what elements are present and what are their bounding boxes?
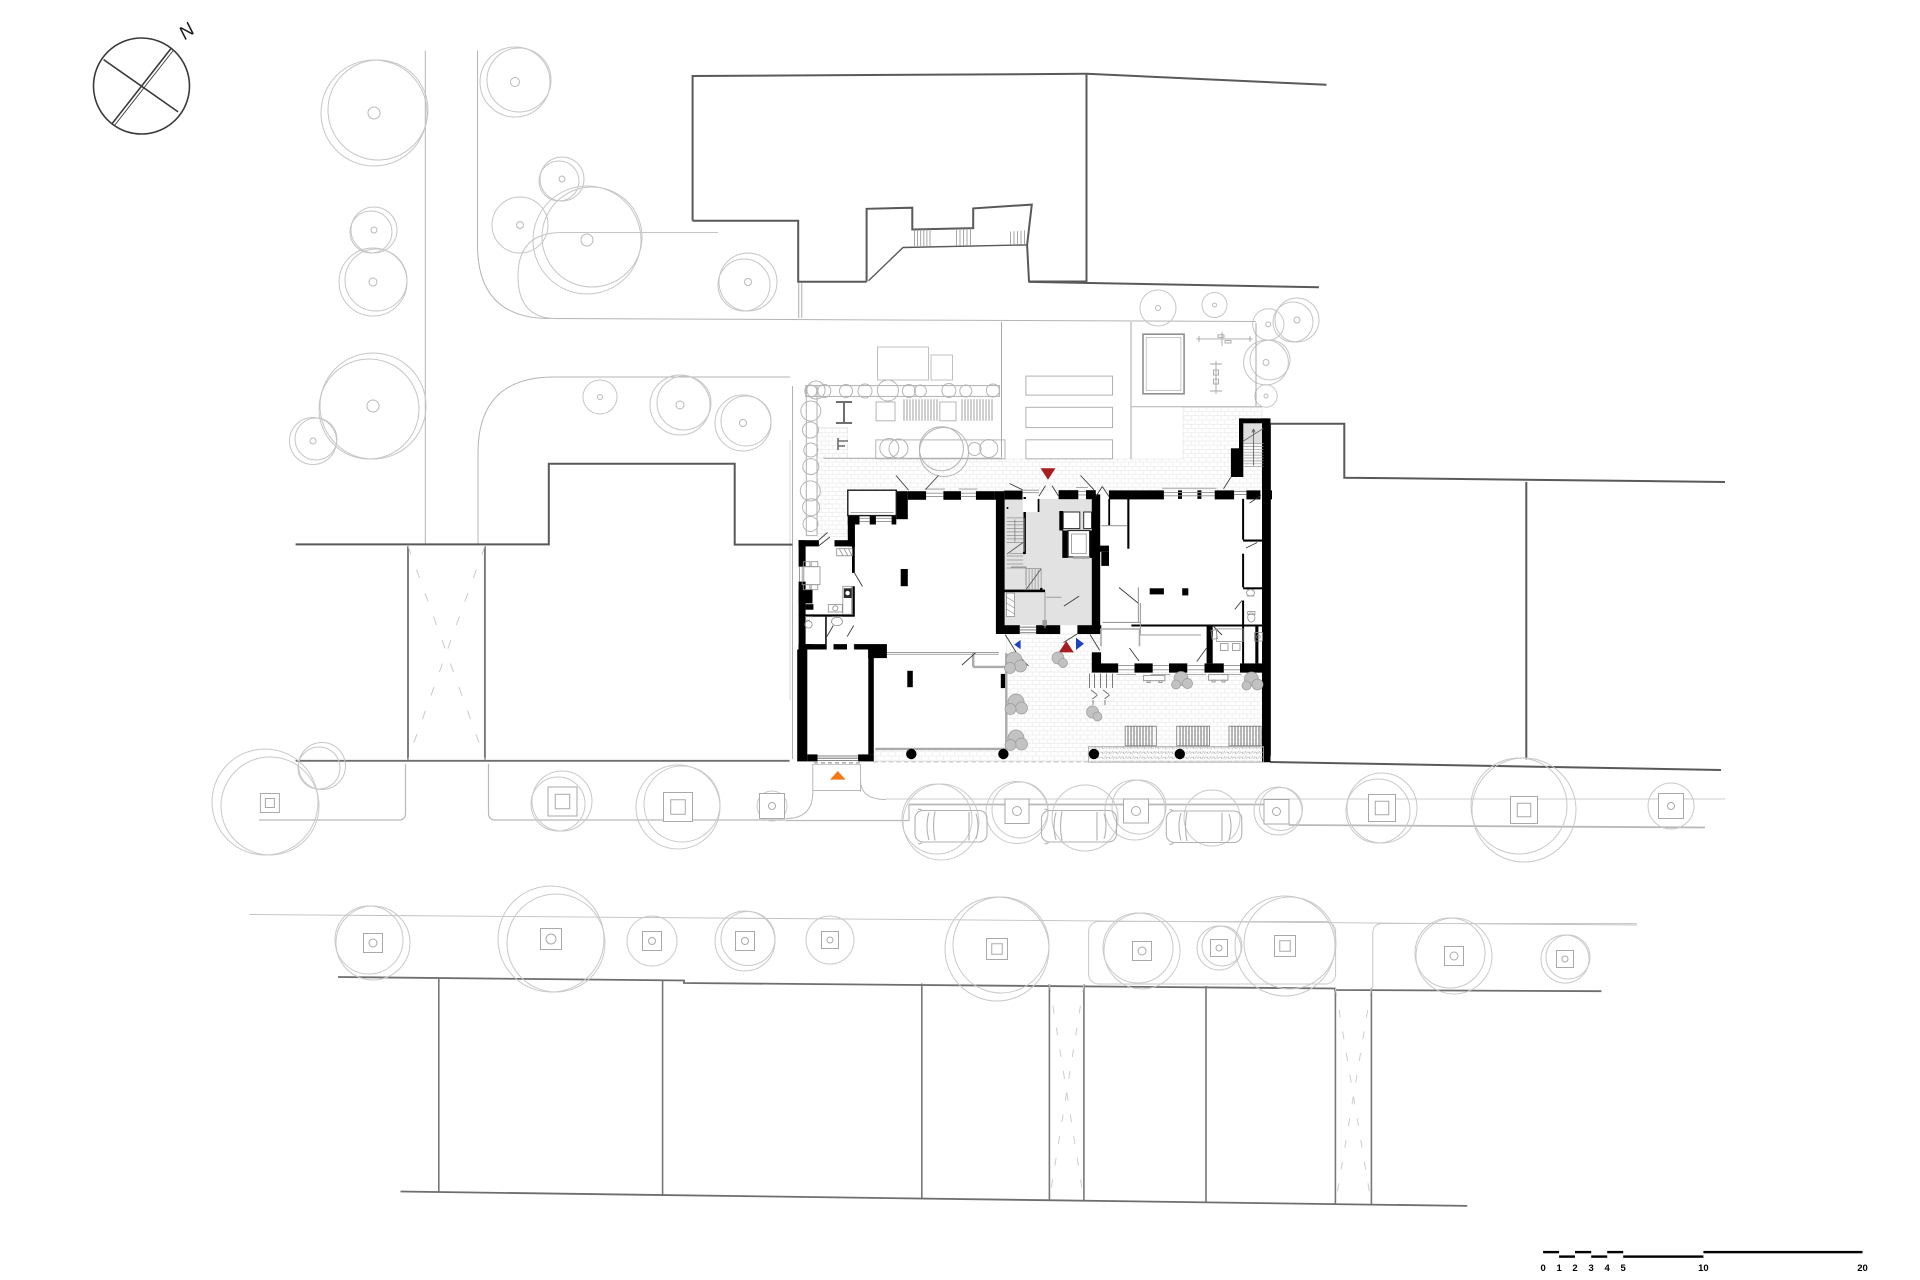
svg-text:1: 1 — [1556, 1263, 1562, 1274]
svg-text:10: 10 — [1698, 1263, 1709, 1274]
svg-text:3: 3 — [1589, 1263, 1594, 1274]
svg-text:4: 4 — [1605, 1263, 1611, 1274]
svg-text:2: 2 — [1572, 1263, 1577, 1274]
svg-text:20: 20 — [1857, 1263, 1868, 1274]
svg-text:0: 0 — [1540, 1263, 1545, 1274]
svg-text:5: 5 — [1621, 1263, 1627, 1274]
